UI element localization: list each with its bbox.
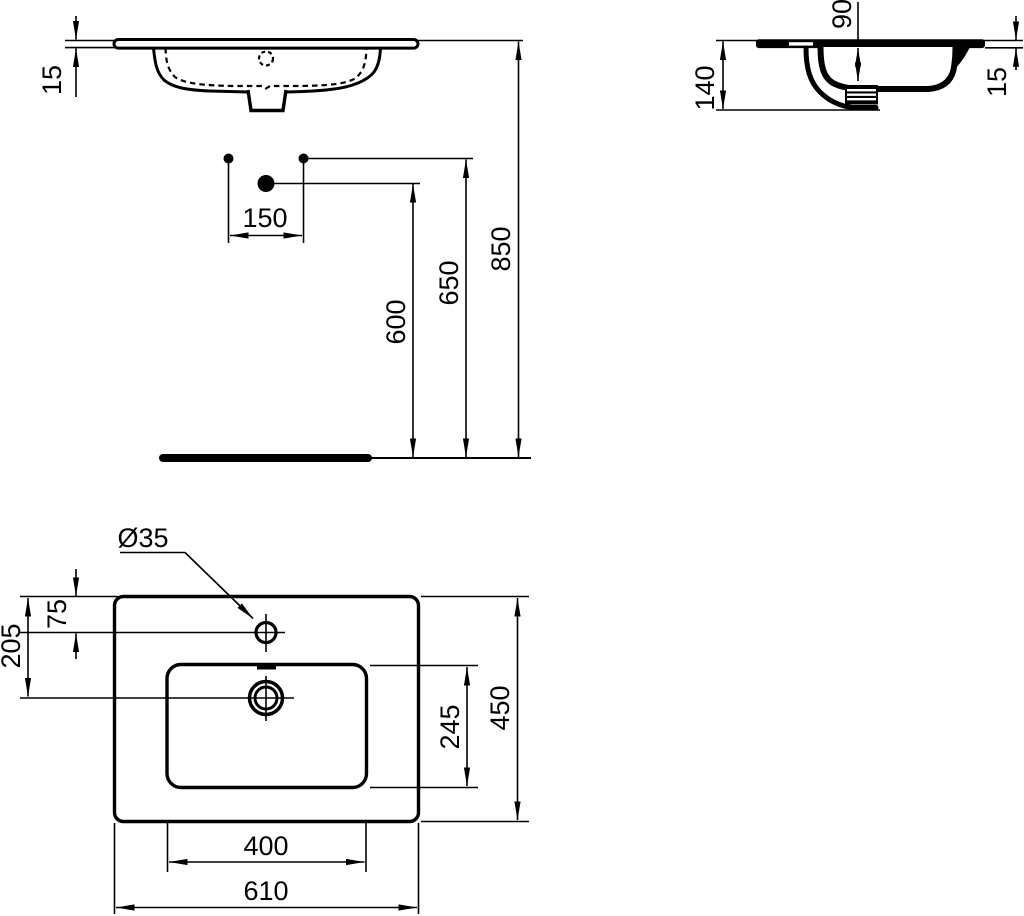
dim-600-label: 600	[381, 299, 411, 344]
bowl-section	[821, 47, 956, 89]
dim-245-label: 245	[435, 704, 465, 749]
plan-view: Ø35 75 205 245 450 400 610	[0, 523, 529, 914]
dim-15-label: 15	[37, 65, 67, 95]
technical-drawing-sheet: 15 150 600 650 850	[0, 0, 1024, 916]
washbasin-dimensional-drawing: 15 150 600 650 850	[0, 0, 1024, 916]
dim-850-label: 850	[486, 226, 516, 271]
waste-outlet-box	[248, 90, 286, 111]
leader-arrow	[185, 553, 253, 619]
rim-slot	[789, 42, 813, 45]
dim-610-label: 610	[243, 876, 288, 906]
dim-150-label: 150	[242, 203, 287, 233]
dim-90-label: 90	[827, 0, 857, 29]
dim-15-label: 15	[982, 67, 1012, 97]
dim-650-label: 650	[434, 260, 464, 305]
basin-outer-outline	[154, 48, 381, 92]
rim-profile	[114, 40, 418, 49]
overflow-hole-dashed	[259, 52, 273, 66]
dim-450-label: 450	[485, 685, 515, 730]
basin-hidden-outline-dashed	[166, 48, 367, 89]
front-view: 15 150 600 650 850	[37, 16, 531, 458]
dim-140-label: 140	[690, 65, 720, 110]
tap-hole-diameter-label: Ø35	[117, 523, 168, 553]
dim-205-label: 205	[0, 623, 26, 668]
dim-400-label: 400	[243, 831, 288, 861]
side-view: 90 140 15	[690, 0, 1023, 111]
overflow-notch	[257, 664, 276, 670]
dim-75-label: 75	[42, 599, 72, 629]
